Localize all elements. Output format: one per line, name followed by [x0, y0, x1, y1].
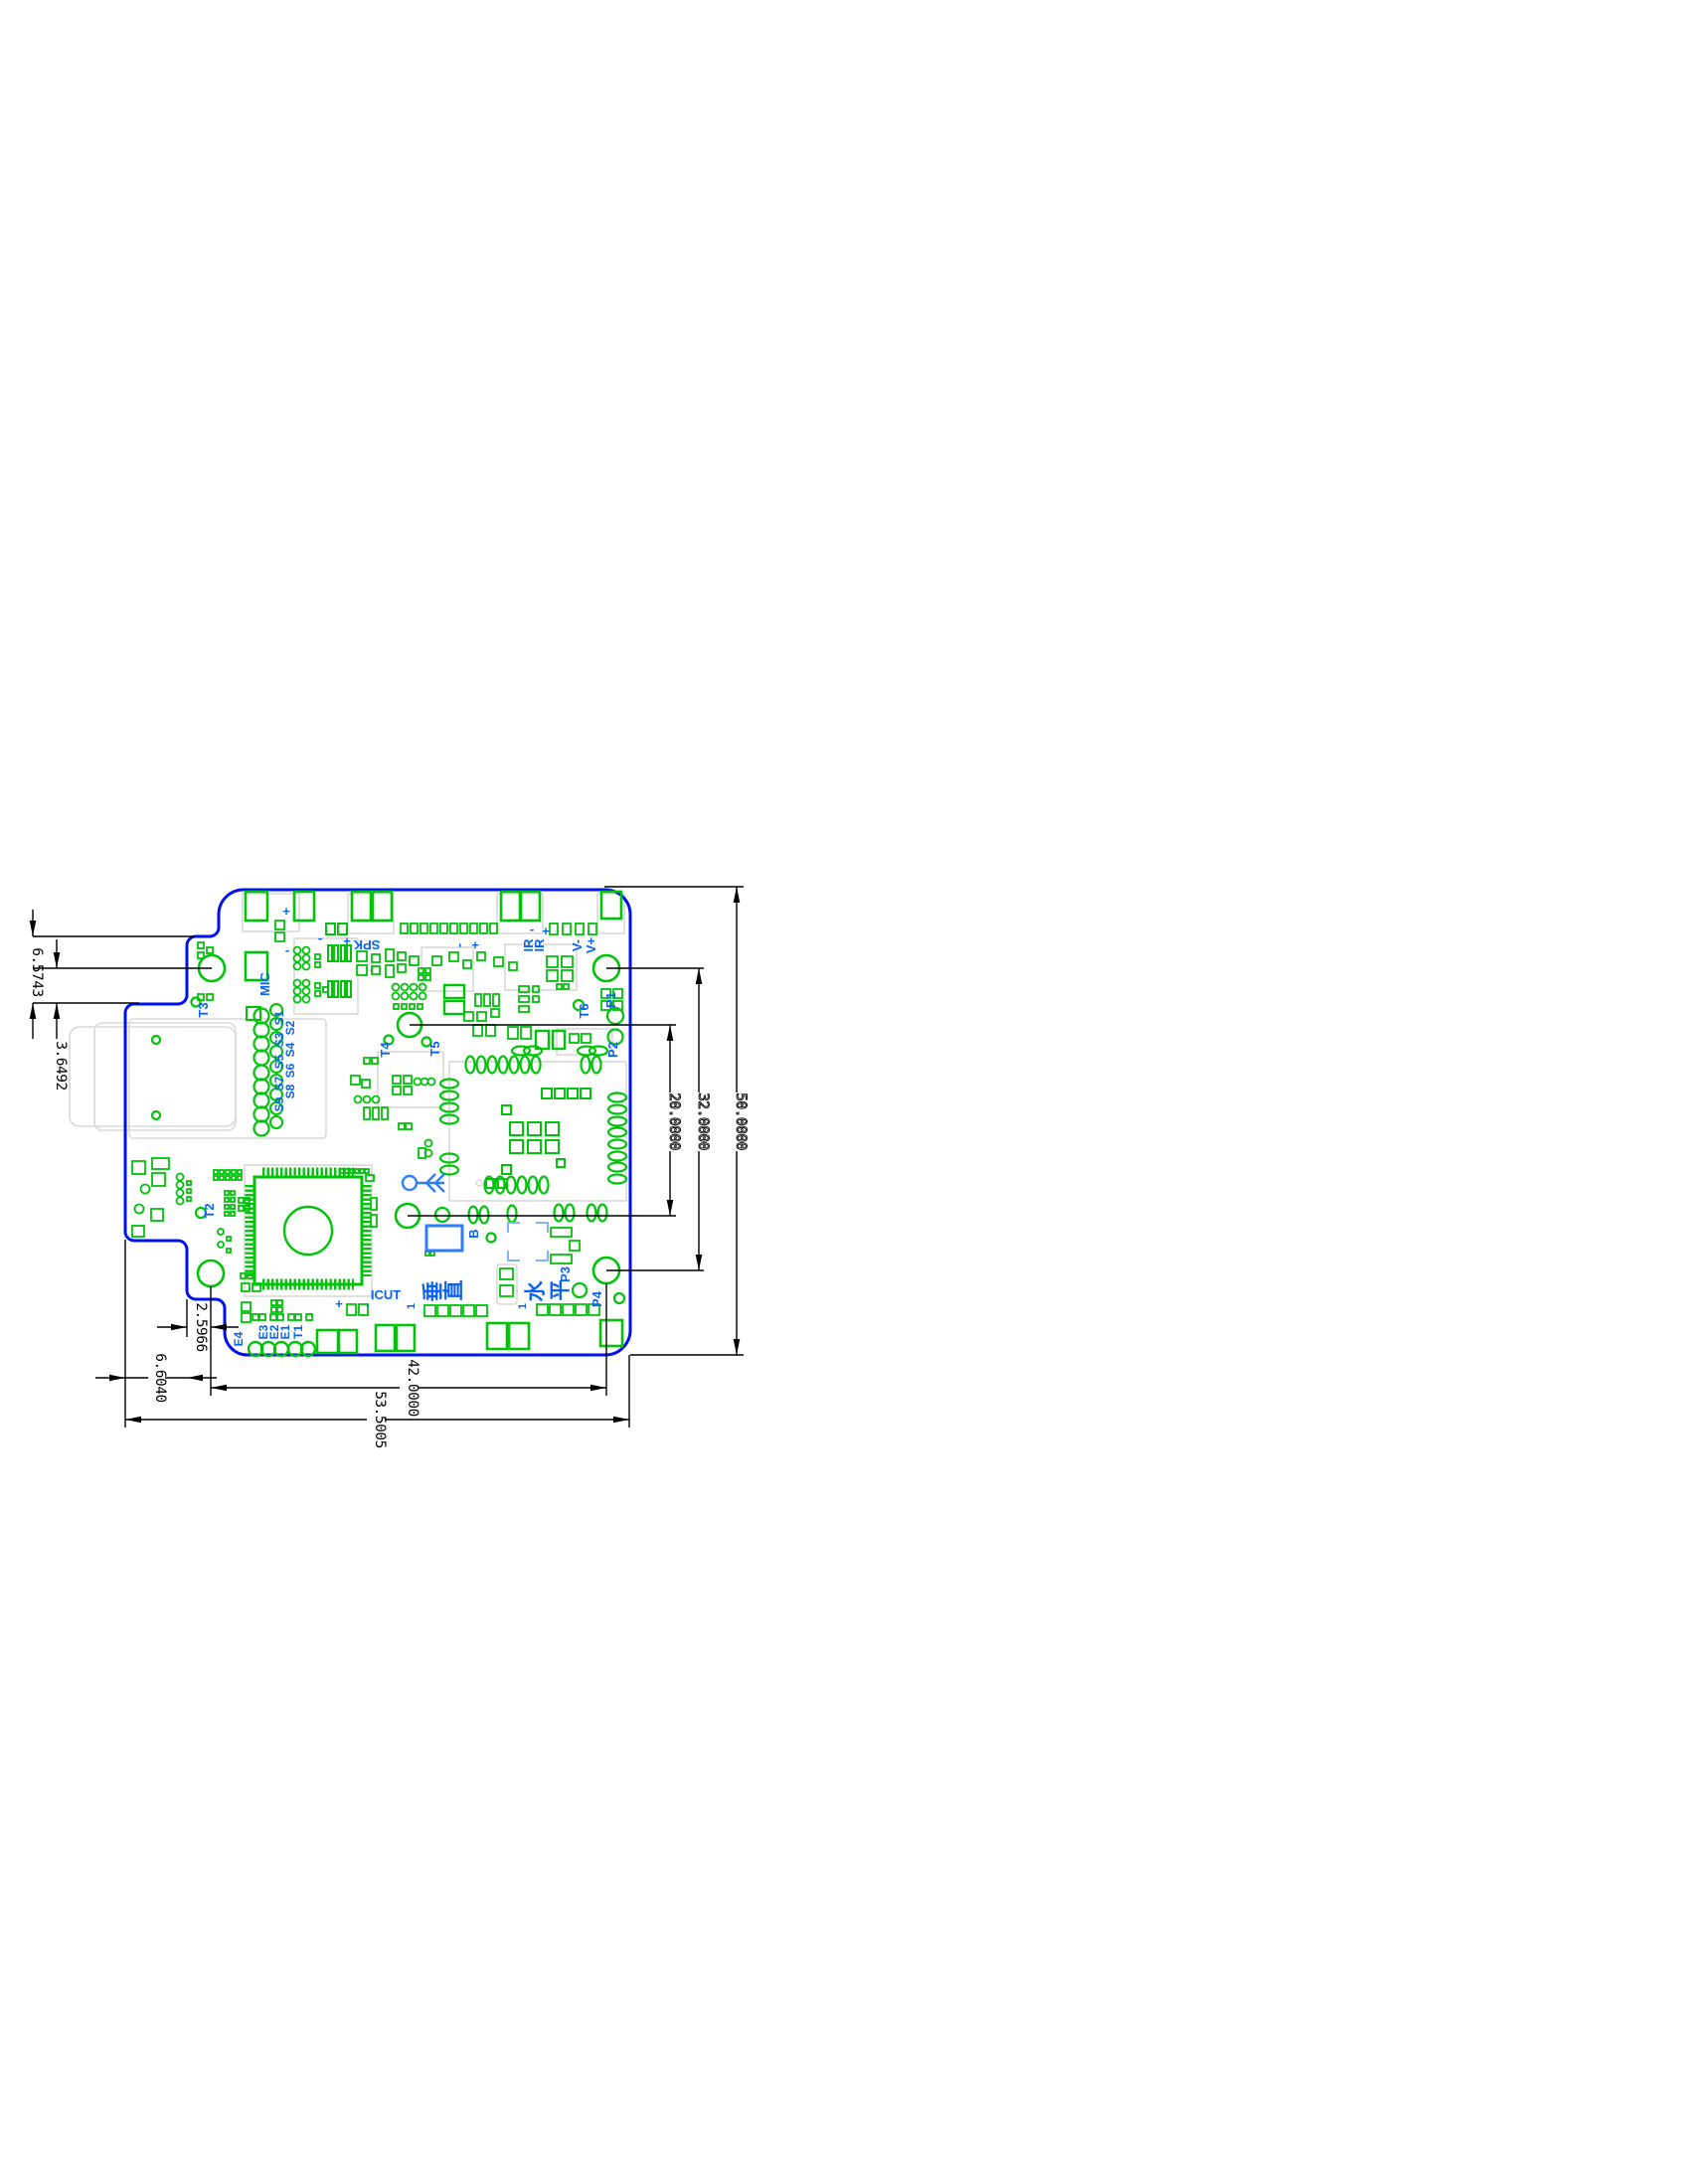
label-v-plus: V+	[584, 936, 598, 953]
dimension-arrows	[30, 887, 741, 1423]
label-icut-plus: +	[335, 1296, 343, 1311]
qfp-chip	[251, 1173, 366, 1284]
label-mid-plus: +	[471, 937, 479, 952]
label-p3: P3	[558, 1266, 573, 1282]
label-mic-minus: -	[285, 942, 289, 957]
dim-board-width: 53.5005	[372, 1391, 388, 1448]
label-p4: P4	[589, 1290, 604, 1307]
bottom-left-components	[132, 1158, 250, 1253]
person-icon	[403, 1174, 444, 1192]
label-mic: MIC	[257, 971, 272, 995]
placement-bracket	[508, 1223, 548, 1260]
label-e4: E4	[232, 1331, 246, 1346]
label-t6: T6	[577, 1003, 591, 1018]
dim-board-height: 50.0000	[733, 1092, 749, 1150]
label-v-minus: V-	[570, 939, 585, 951]
dim-bottom-left-step: 6.6040	[152, 1353, 168, 1402]
label-s8: S8	[283, 1084, 297, 1098]
label-icut-minus: -	[359, 1303, 374, 1307]
qfp-courtyard	[245, 1165, 372, 1296]
tp-p3	[573, 1283, 587, 1297]
dimension-layer	[33, 887, 744, 1428]
qfp-body	[254, 1177, 362, 1284]
label-s9: S9	[272, 1096, 286, 1111]
tp-p4	[614, 1293, 624, 1303]
label-t2: T2	[202, 1203, 217, 1218]
label-t3: T3	[196, 1002, 211, 1017]
label-icut: ICUT	[371, 1287, 401, 1302]
tp-mid	[435, 1208, 449, 1222]
label-e1: E1	[278, 1324, 292, 1339]
label-p1: P1	[603, 992, 618, 1008]
dim-hole-span-outer: 32.0000	[695, 1092, 711, 1150]
label-spk-minus: -	[318, 930, 322, 945]
label-s6: S6	[283, 1063, 297, 1078]
label-spk: SPK	[353, 937, 380, 952]
dim-hole-span-inner: 20.0000	[666, 1092, 682, 1150]
dim-hole-span-horizontal: 42.0000	[405, 1359, 421, 1417]
label-p2: P2	[605, 1042, 620, 1058]
dim-bottom-hole-to-edge: 2.5966	[193, 1302, 209, 1351]
label-pin1-horizontal: 1	[517, 1303, 529, 1309]
label-t1: T1	[291, 1325, 305, 1339]
dim-left-step: 6.5743	[29, 947, 45, 996]
center-left-components	[340, 1058, 435, 1256]
label-mic-plus: +	[282, 904, 290, 919]
module-pads	[440, 1057, 626, 1224]
blue-component-body	[426, 1226, 462, 1251]
tp-b	[487, 1234, 496, 1243]
label-ir-plus: +	[542, 924, 550, 938]
label-pin1-vertical: 1	[406, 1303, 418, 1309]
bottom-center-components	[241, 1228, 599, 1322]
label-ir-b: IR	[532, 938, 547, 952]
sd-card-outline-inner	[94, 1023, 236, 1130]
label-t4: T4	[378, 1042, 393, 1058]
dim-left-hole: 3.6492	[53, 1041, 69, 1090]
mounting-hole-bottom-left	[198, 1260, 224, 1286]
cad-canvas: 6.5743 3.6492 2.5966 6.6040 42.0000 53.5…	[0, 0, 1683, 2184]
label-cjk-vertical-2: 直	[443, 1280, 466, 1301]
bottom-edge-pads	[317, 1320, 622, 1353]
label-b: B	[466, 1229, 481, 1238]
label-ir-minus: -	[530, 922, 534, 936]
label-cjk-vertical-1: 垂	[422, 1281, 445, 1302]
module-outline	[449, 1062, 626, 1201]
label-mid-minus: -	[451, 943, 466, 947]
label-cjk-horizontal-1: 水	[525, 1280, 548, 1302]
qfp-center-mark	[284, 1207, 332, 1255]
label-t5: T5	[427, 1041, 442, 1056]
pcb-dimension-drawing: 6.5743 3.6492 2.5966 6.6040 42.0000 53.5…	[0, 0, 1683, 2184]
label-spk-plus: +	[343, 933, 351, 948]
